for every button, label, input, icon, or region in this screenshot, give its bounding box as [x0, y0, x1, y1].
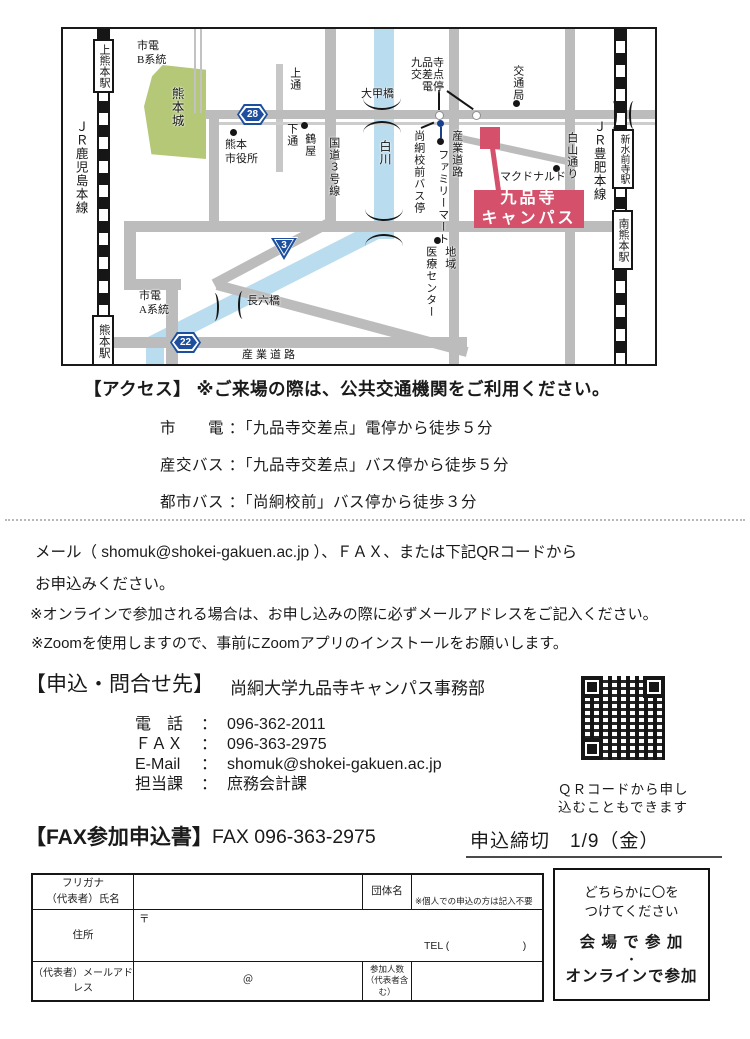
taiko-bridge-label: 大甲橋 — [361, 88, 394, 102]
form-at-mark: ＠ — [243, 973, 254, 989]
castle-label: 熊本城 — [168, 87, 184, 128]
familymart-dot — [437, 138, 444, 145]
form-tel-field: TEL ( ) — [424, 939, 526, 955]
fax-number: FAX 096-363-2975 — [212, 826, 376, 849]
form-cell-sanka-label: 参加人数 （代表者含む） — [363, 962, 412, 1000]
tram-a-label: 市電 A系統 — [139, 290, 169, 318]
qr-caption-line2: 込むこともできます — [558, 796, 688, 816]
qr-finder-icon — [643, 676, 665, 698]
city-hall-label: 熊本 市役所 — [225, 139, 258, 167]
iryo-center-label: 医療センター — [423, 246, 437, 318]
choice-separator-dot: ・ — [625, 952, 638, 968]
station-label: 上熊本駅 — [98, 44, 109, 88]
contact-colon: ： — [201, 776, 217, 793]
form-cell-dantai-label: 団体名 — [363, 875, 412, 910]
access-line-toshi-bus: 都市バス ：「尚絅校前」バス停から徒歩３分 — [160, 490, 477, 512]
contact-value: 庶務会計課 — [227, 776, 307, 793]
participation-choice-box: どちらかに〇を つけてください 会 場 で 参 加 ・ オンラインで参加 — [553, 868, 710, 1001]
qr-finder-icon — [581, 676, 603, 698]
form-cell-name-input[interactable] — [134, 875, 363, 910]
campus-access-road — [456, 134, 573, 166]
form-furigana-line2: （代表者）氏名 — [46, 892, 120, 908]
kotsukyoku-label: 交通局 — [510, 65, 524, 101]
route-28-number: 28 — [247, 109, 258, 120]
fax-application-form: フリガナ （代表者）氏名 団体名 ※個人での申込の方は記入不要 住所 〒 TEL… — [31, 873, 544, 1002]
tram-stop-circle-2 — [472, 111, 481, 120]
sangyo-road-vertical — [449, 29, 459, 366]
hakuzan-dori-label: 白山通り — [564, 132, 578, 180]
apply-line2: お申込みください。 — [35, 572, 175, 594]
apply-note-zoom: ※Zoomを使用しますので、事前にZoomアプリのインストールをお願いします。 — [31, 632, 568, 653]
rail-cross-mark-right — [629, 101, 638, 129]
form-cell-address-input[interactable]: 〒 TEL ( ) — [134, 910, 542, 962]
shirakawa-label: 白川 — [377, 140, 392, 166]
tram-stop-circle-1 — [435, 111, 444, 120]
tram-line-b — [194, 29, 202, 113]
familymart-label: ファミリーマート — [435, 149, 449, 245]
shokei-bus-stop-label: 尚絅校前バス停 — [411, 130, 425, 214]
form-sanka-line2: （代表者含む） — [363, 975, 411, 997]
form-cell-email-input[interactable]: ＠ — [134, 962, 363, 1000]
city-block-road — [209, 117, 219, 223]
station-shinsuizenji: 新水前寺駅 — [612, 129, 634, 189]
city-hall-dot — [230, 129, 237, 136]
choice-online[interactable]: オンラインで参加 — [565, 968, 697, 987]
contact-header-bracket: 【申込・問合せ先】 — [25, 668, 214, 698]
jr-kagoshima-label: ＪＲ鹿児島本線 — [72, 120, 88, 215]
rail-cross-mark-left — [608, 101, 617, 129]
chiiki-label: 地域 — [442, 246, 456, 270]
shirakawa-river-upper — [374, 29, 394, 239]
station-minamikumamoto: 南熊本駅 — [612, 210, 633, 270]
kamitori-label: 上通 — [287, 67, 301, 91]
dotted-divider — [5, 519, 745, 521]
form-sanka-line1: 参加人数 — [370, 964, 404, 975]
form-cell-furigana-label: フリガナ （代表者）氏名 — [33, 875, 134, 910]
tram-b-label: 市電 B系統 — [137, 40, 166, 68]
choice-venue[interactable]: 会 場 で 参 加 — [580, 934, 684, 953]
form-cell-address-label: 住所 — [33, 910, 134, 962]
form-dantai-label: 団体名 — [371, 884, 403, 900]
campus-name-line1: 九品寺 — [500, 189, 557, 209]
contact-label: 担当課 — [135, 770, 201, 794]
tsuruya-label: 鶴屋 — [302, 133, 316, 157]
sangyo-road-label-horizontal: 産業道路 — [242, 349, 298, 363]
form-cell-email-label: （代表者）メールアドレス — [33, 962, 134, 1000]
campus-name-line2: キャンパス — [481, 209, 576, 229]
route-3-number: 3 — [281, 240, 287, 254]
apply-line1: メール（ shomuk@shokei-gakuen.ac.jp ）、ＦＡＸ、また… — [35, 540, 577, 562]
choroku-bridge-label: 長六橋 — [247, 295, 280, 309]
tsuruya-dot — [301, 122, 308, 129]
route3-label: 国道３号線 — [326, 137, 340, 197]
kotsukyoku-dot — [513, 100, 520, 107]
qr-code — [577, 672, 669, 764]
fax-deadline: 申込締切 1/9（金） — [470, 826, 659, 853]
apply-note-online: ※オンラインで参加される場合は、お申し込みの際に必ずメールアドレスをご記入くださ… — [30, 603, 658, 624]
bus-stop-icon-pole — [440, 127, 442, 138]
choice-note-line1: どちらかに〇を — [584, 883, 679, 903]
choroku-mark-right — [238, 291, 247, 319]
contact-row-section: 担当課：庶務会計課 — [135, 770, 307, 794]
main-road-east-west — [205, 110, 657, 119]
kuhonji-tram-stop-label: 九品寺 交差点 電停 — [398, 57, 444, 93]
campus-building-mark — [480, 127, 500, 149]
access-line-sanko-bus: 産交バス ：「九品寺交差点」バス停から徒歩５分 — [160, 453, 509, 475]
choice-note-line2: つけてください — [584, 902, 678, 922]
form-postal-mark: 〒 — [139, 912, 150, 928]
jr-hohi-railway — [614, 29, 627, 366]
form-furigana-line1: フリガナ — [62, 876, 104, 892]
form-cell-dantai-input[interactable]: ※個人での申込の方は記入不要 — [412, 875, 542, 910]
shimotori-label: 下通 — [284, 123, 298, 147]
bus-stop-icon — [437, 120, 444, 127]
form-email-label: （代表者）メールアドレス — [33, 966, 133, 996]
form-cell-sanka-input[interactable] — [412, 962, 542, 1000]
access-line-tram: 市 電 ：「九品寺交差点」電停から徒歩５分 — [160, 416, 493, 438]
station-label: 新水前寺駅 — [618, 134, 628, 184]
choroku-mark-left — [210, 293, 219, 321]
access-map: 上熊本駅 熊本駅 新水前寺駅 南熊本駅 28 3 22 九品寺 キャンパス — [61, 27, 657, 366]
bridge2-mark-top — [365, 209, 403, 221]
fax-header-bracket: 【FAX参加申込書】 — [25, 821, 213, 851]
sangyo-road-label-vertical: 産業道路 — [449, 130, 463, 178]
access-header: 【アクセス】 ※ご来場の際は、公共交通機関をご利用ください。 — [84, 376, 610, 401]
station-kamikumamoto: 上熊本駅 — [93, 39, 114, 93]
route-22-number: 22 — [180, 337, 191, 348]
station-kumamoto: 熊本駅 — [92, 315, 114, 366]
qr-caption-line1: ＱＲコードから申し — [558, 778, 689, 798]
qr-finder-icon — [581, 738, 603, 760]
mcdonalds-label: マクドナルド — [500, 171, 566, 185]
campus-label-box: 九品寺 キャンパス — [474, 190, 584, 228]
station-label: 熊本駅 — [97, 324, 109, 359]
contact-header-org: 尚絅大学九品寺キャンパス事務部 — [230, 674, 485, 699]
form-dantai-note: ※個人での申込の方は記入不要 — [415, 896, 533, 907]
station-label: 南熊本駅 — [617, 218, 628, 262]
form-address-label: 住所 — [73, 928, 94, 944]
deadline-underline — [466, 856, 722, 858]
jr-hohi-label: ＪＲ豊肥本線 — [590, 120, 606, 201]
